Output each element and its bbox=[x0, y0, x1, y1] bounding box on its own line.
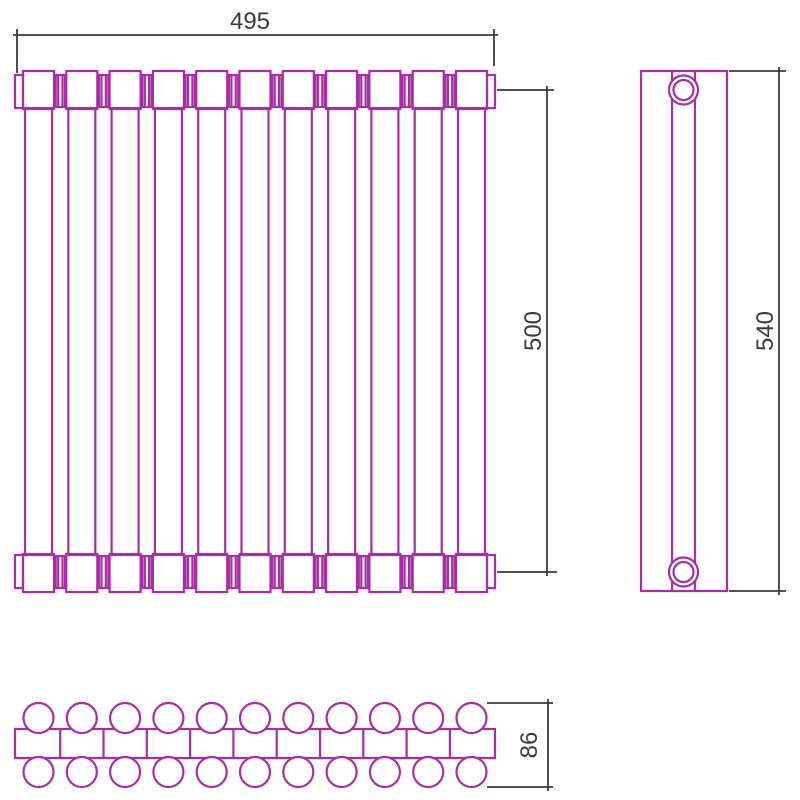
front-column-top-cap bbox=[110, 71, 141, 109]
side-view-radiator bbox=[641, 71, 727, 591]
front-column-body bbox=[25, 108, 52, 555]
front-column-bottom-cap bbox=[369, 554, 400, 592]
bottom-tube-circle-bottom bbox=[197, 757, 227, 787]
bottom-tube-circle-top bbox=[110, 703, 140, 733]
front-column-top-cap bbox=[153, 71, 184, 109]
bottom-tube-circle-bottom bbox=[153, 757, 183, 787]
front-bottom-connector bbox=[359, 556, 368, 588]
bottom-tube-circle-top bbox=[283, 703, 313, 733]
front-top-connector bbox=[56, 75, 65, 107]
front-left-bottom-endcap bbox=[15, 555, 23, 588]
radiator-technical-drawing: 495 500 540 86 bbox=[0, 0, 800, 800]
front-view-radiator bbox=[15, 71, 495, 592]
bottom-tube-circle-bottom bbox=[457, 757, 487, 787]
front-column-bottom-cap bbox=[110, 554, 141, 592]
front-bottom-connector bbox=[445, 556, 454, 588]
front-bottom-connector bbox=[272, 556, 281, 588]
front-bottom-connector bbox=[316, 556, 325, 588]
front-column-top-cap bbox=[413, 71, 444, 109]
bottom-tube-circle-bottom bbox=[413, 757, 443, 787]
front-bottom-connector bbox=[142, 556, 151, 588]
bottom-tube-circle-top bbox=[197, 703, 227, 733]
bottom-tube-circle-bottom bbox=[327, 757, 357, 787]
dim-side-height-label: 540 bbox=[752, 311, 779, 351]
front-column-body bbox=[68, 108, 95, 555]
front-column-bottom-cap bbox=[196, 554, 227, 592]
bottom-tube-circle-bottom bbox=[110, 757, 140, 787]
front-column-body bbox=[112, 108, 139, 555]
front-column-body bbox=[198, 108, 225, 555]
bottom-tube-circle-top bbox=[153, 703, 183, 733]
bottom-tube-circle-bottom bbox=[370, 757, 400, 787]
front-right-bottom-endcap bbox=[487, 555, 495, 588]
bottom-tube-circle-bottom bbox=[283, 757, 313, 787]
front-left-top-endcap bbox=[15, 75, 23, 108]
front-top-connector bbox=[445, 75, 454, 107]
front-bottom-connector bbox=[99, 556, 108, 588]
dim-width-label: 495 bbox=[230, 8, 270, 35]
front-bottom-connector bbox=[56, 556, 65, 588]
front-column-bottom-cap bbox=[413, 554, 444, 592]
bottom-tube-circle-top bbox=[24, 703, 54, 733]
side-body-outline bbox=[641, 71, 727, 591]
front-top-connector bbox=[99, 75, 108, 107]
front-top-connector bbox=[142, 75, 151, 107]
front-column-body bbox=[415, 108, 442, 555]
front-column-body bbox=[285, 108, 312, 555]
front-column-body bbox=[242, 108, 269, 555]
front-column-body bbox=[328, 108, 355, 555]
front-top-connector bbox=[272, 75, 281, 107]
front-bottom-connector bbox=[402, 556, 411, 588]
front-column-body bbox=[155, 108, 182, 555]
front-column-top-cap bbox=[456, 71, 487, 109]
front-column-top-cap bbox=[326, 71, 357, 109]
front-column-body bbox=[371, 108, 398, 555]
front-column-bottom-cap bbox=[283, 554, 314, 592]
front-bottom-connector bbox=[186, 556, 195, 588]
front-column-top-cap bbox=[196, 71, 227, 109]
bottom-tube-circle-top bbox=[327, 703, 357, 733]
front-column-bottom-cap bbox=[326, 554, 357, 592]
dim-depth-label: 86 bbox=[516, 732, 543, 759]
front-top-connector bbox=[359, 75, 368, 107]
dimension-lines bbox=[13, 29, 786, 791]
bottom-tube-circle-top bbox=[370, 703, 400, 733]
front-column-top-cap bbox=[66, 71, 97, 109]
bottom-tube-circle-top bbox=[240, 703, 270, 733]
front-top-connector bbox=[316, 75, 325, 107]
front-column-bottom-cap bbox=[240, 554, 271, 592]
front-column-top-cap bbox=[369, 71, 400, 109]
front-column-bottom-cap bbox=[23, 554, 54, 592]
drawing-canvas: 495 500 540 86 bbox=[0, 0, 800, 800]
bottom-tube-circle-top bbox=[413, 703, 443, 733]
bottom-tube-circle-bottom bbox=[24, 757, 54, 787]
front-right-top-endcap bbox=[487, 75, 495, 108]
front-column-bottom-cap bbox=[153, 554, 184, 592]
front-column-top-cap bbox=[23, 71, 54, 109]
front-column-bottom-cap bbox=[456, 554, 487, 592]
front-top-connector bbox=[229, 75, 238, 107]
front-bottom-connector bbox=[229, 556, 238, 588]
dim-height-label: 500 bbox=[520, 311, 547, 351]
front-top-connector bbox=[186, 75, 195, 107]
front-column-bottom-cap bbox=[66, 554, 97, 592]
bottom-tube-circle-bottom bbox=[240, 757, 270, 787]
bottom-tube-circle-top bbox=[457, 703, 487, 733]
front-column-top-cap bbox=[283, 71, 314, 109]
bottom-tube-circle-bottom bbox=[67, 757, 97, 787]
front-top-connector bbox=[402, 75, 411, 107]
bottom-view-radiator bbox=[15, 703, 495, 787]
front-column-body bbox=[458, 108, 485, 555]
bottom-tube-circle-top bbox=[67, 703, 97, 733]
front-column-top-cap bbox=[240, 71, 271, 109]
